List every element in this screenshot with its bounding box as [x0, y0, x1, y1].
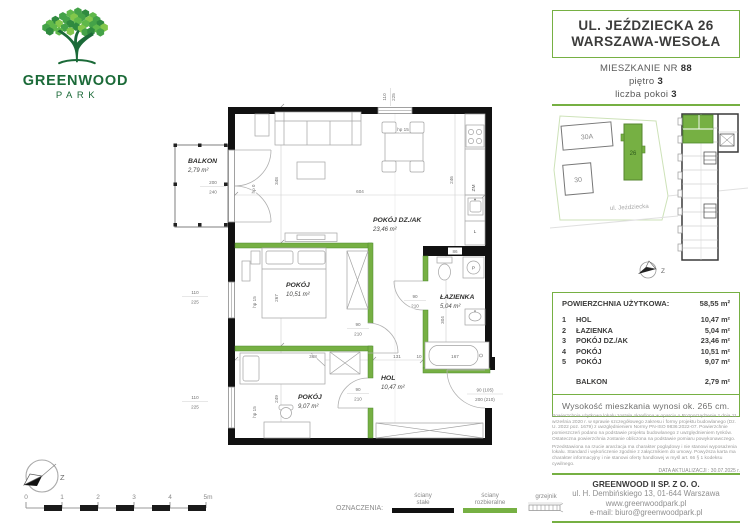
floor-line: piętro 3: [552, 75, 740, 88]
company-name: GREENWOOD II SP. Z O. O.: [552, 479, 740, 489]
disclaimer-para2: Przedstawiona na rzucie aranżacja ma cha…: [552, 445, 740, 468]
svg-text:4: 4: [168, 494, 172, 501]
company-website: www.greenwoodpark.pl: [552, 499, 740, 509]
address-line2: WARSZAWA-WESOŁA: [571, 34, 720, 50]
logo-tree-icon: [34, 6, 118, 66]
building-30: 30: [563, 163, 594, 195]
building-30a: 30A: [561, 122, 613, 150]
kitchen: ZM L: [465, 114, 485, 245]
room-label-living: POKÓJ DZ./AK: [373, 215, 422, 224]
removable-wall-swatch: [463, 508, 517, 513]
svg-text:BALKON: BALKON: [188, 158, 218, 165]
svg-text:267: 267: [274, 294, 279, 302]
unit-number-line: MIESZKANIE NR 88: [552, 62, 740, 75]
divider-top: [552, 104, 740, 106]
svg-text:30A: 30A: [581, 133, 594, 141]
svg-text:23,46 m²: 23,46 m²: [372, 227, 398, 233]
svg-text:110: 110: [191, 395, 199, 400]
svg-text:hp 15: hp 15: [252, 406, 257, 418]
svg-text:210: 210: [354, 397, 362, 402]
floor-overview: [678, 114, 738, 260]
svg-text:604: 604: [356, 189, 364, 194]
disclaimer-para1: Powierzchnia użytkowa lokalu została okr…: [552, 414, 740, 443]
footer: GREENWOOD II SP. Z O. O. ul. H. Dembińsk…: [552, 479, 740, 518]
svg-text:30: 30: [574, 177, 582, 185]
svg-text:304: 304: [440, 316, 445, 324]
table-row: 1HOL10,47 m²: [562, 315, 730, 326]
svg-text:0: 0: [24, 494, 28, 501]
legend: OZNACZENIA: ścianystałe ścianyrozbieraln…: [336, 493, 566, 513]
fridge-label: L: [474, 229, 477, 235]
scale-bar: 0 1 2 3 4 5m: [18, 488, 223, 518]
svg-text:5m: 5m: [203, 494, 212, 501]
site-map: 30A 30 26 ul. Jeździecka: [550, 108, 748, 290]
room-label-bedroom: POKÓJ: [286, 280, 310, 289]
street-label: ul. Jeździecka: [610, 203, 650, 212]
svg-text:10,51 m²: 10,51 m²: [286, 292, 311, 298]
balcony: BALKON 2,79 m² 200 240: [174, 144, 229, 228]
table-row: 3POKÓJ DZ./AK23,46 m²: [562, 336, 730, 347]
svg-text:hp 15: hp 15: [252, 296, 257, 308]
svg-text:167: 167: [451, 354, 459, 359]
svg-text:10: 10: [416, 354, 422, 359]
svg-text:2,79 m²: 2,79 m²: [187, 168, 209, 174]
company-address: ul. H. Dembińskiego 13, 01-644 Warszawa: [552, 489, 740, 499]
address-line1: UL. JEŹDZIECKA 26: [578, 18, 713, 34]
svg-text:210: 210: [354, 332, 362, 337]
svg-text:Z: Z: [661, 268, 665, 275]
table-row: 5POKÓJ9,07 m²: [562, 357, 730, 368]
svg-text:210: 210: [411, 304, 419, 309]
svg-text:249: 249: [274, 395, 279, 403]
svg-text:9,07 m²: 9,07 m²: [298, 404, 319, 410]
height-note: Wysokość mieszkania wynosi ok. 265 cm.: [562, 395, 730, 411]
room-label-bedroom2: POKÓJ: [298, 392, 322, 401]
dishwasher-label: ZM: [471, 185, 477, 192]
svg-text:225: 225: [391, 93, 396, 101]
svg-text:5,04 m²: 5,04 m²: [440, 304, 461, 310]
svg-text:246: 246: [449, 176, 454, 184]
room-label-hall: HOL: [381, 375, 395, 382]
svg-text:90: 90: [412, 294, 418, 299]
bathroom-fixtures: P: [425, 257, 489, 369]
legend-title: OZNACZENIA:: [336, 505, 383, 512]
svg-text:1: 1: [60, 494, 64, 501]
site-compass-icon: Z: [638, 261, 665, 278]
washer-label: P: [472, 266, 475, 272]
svg-text:240: 240: [209, 190, 217, 195]
svg-text:3: 3: [132, 494, 136, 501]
svg-text:225: 225: [191, 405, 199, 410]
svg-text:225: 225: [191, 300, 199, 305]
dim-86: 86: [452, 249, 458, 254]
solid-wall-swatch: [392, 508, 454, 513]
svg-text:90 (105): 90 (105): [476, 388, 494, 393]
svg-text:200: 200: [209, 180, 217, 185]
svg-text:2: 2: [96, 494, 100, 501]
divider-footer-top: [552, 473, 740, 475]
svg-text:hp 15: hp 15: [397, 127, 409, 132]
furniture-hall: [376, 423, 483, 438]
rooms-line: liczba pokoi 3: [552, 88, 740, 101]
area-table-title: POWIERZCHNIA UŻYTKOWA:: [562, 299, 669, 308]
disclaimer: Powierzchnia użytkowa lokalu została okr…: [552, 414, 740, 475]
room-label-bath: ŁAZIENKA: [439, 294, 474, 301]
legend-removable-walls: ścianyrozbieralne: [463, 493, 517, 513]
svg-text:110: 110: [191, 290, 199, 295]
balcony-row: BALKON2,79 m²: [562, 377, 730, 388]
svg-text:90: 90: [355, 322, 361, 327]
company-email: e-mail: biuro@greenwoodpark.pl: [552, 508, 740, 518]
svg-text:10,47 m²: 10,47 m²: [381, 385, 406, 391]
svg-text:368: 368: [309, 354, 317, 359]
unit-info: MIESZKANIE NR 88 piętro 3 liczba pokoi 3: [552, 62, 740, 101]
table-row: 4POKÓJ10,51 m²: [562, 347, 730, 358]
svg-text:348: 348: [274, 177, 279, 185]
floor-plan: BALKON 2,79 m² 200 240 86: [85, 85, 545, 485]
table-row: 2ŁAZIENKA5,04 m²: [562, 326, 730, 337]
svg-text:Z: Z: [60, 473, 65, 482]
apartment-card: GREENWOOD PARK UL. JEŹDZIECKA 26 WARSZAW…: [0, 0, 750, 530]
address-box: UL. JEŹDZIECKA 26 WARSZAWA-WESOŁA: [552, 10, 740, 58]
svg-text:110: 110: [382, 93, 387, 101]
divider-footer-bottom: [552, 521, 740, 523]
building-26-highlight: 26: [621, 124, 645, 180]
svg-text:131: 131: [393, 354, 401, 359]
area-total: 58,55 m²: [700, 299, 730, 308]
svg-text:90: 90: [355, 387, 361, 392]
svg-text:26: 26: [630, 151, 637, 157]
area-table: POWIERZCHNIA UŻYTKOWA: 58,55 m² 1HOL10,4…: [552, 292, 740, 417]
svg-text:hp 0: hp 0: [251, 184, 256, 193]
legend-solid-walls: ścianystałe: [392, 493, 454, 513]
svg-text:200 (210): 200 (210): [475, 397, 495, 402]
